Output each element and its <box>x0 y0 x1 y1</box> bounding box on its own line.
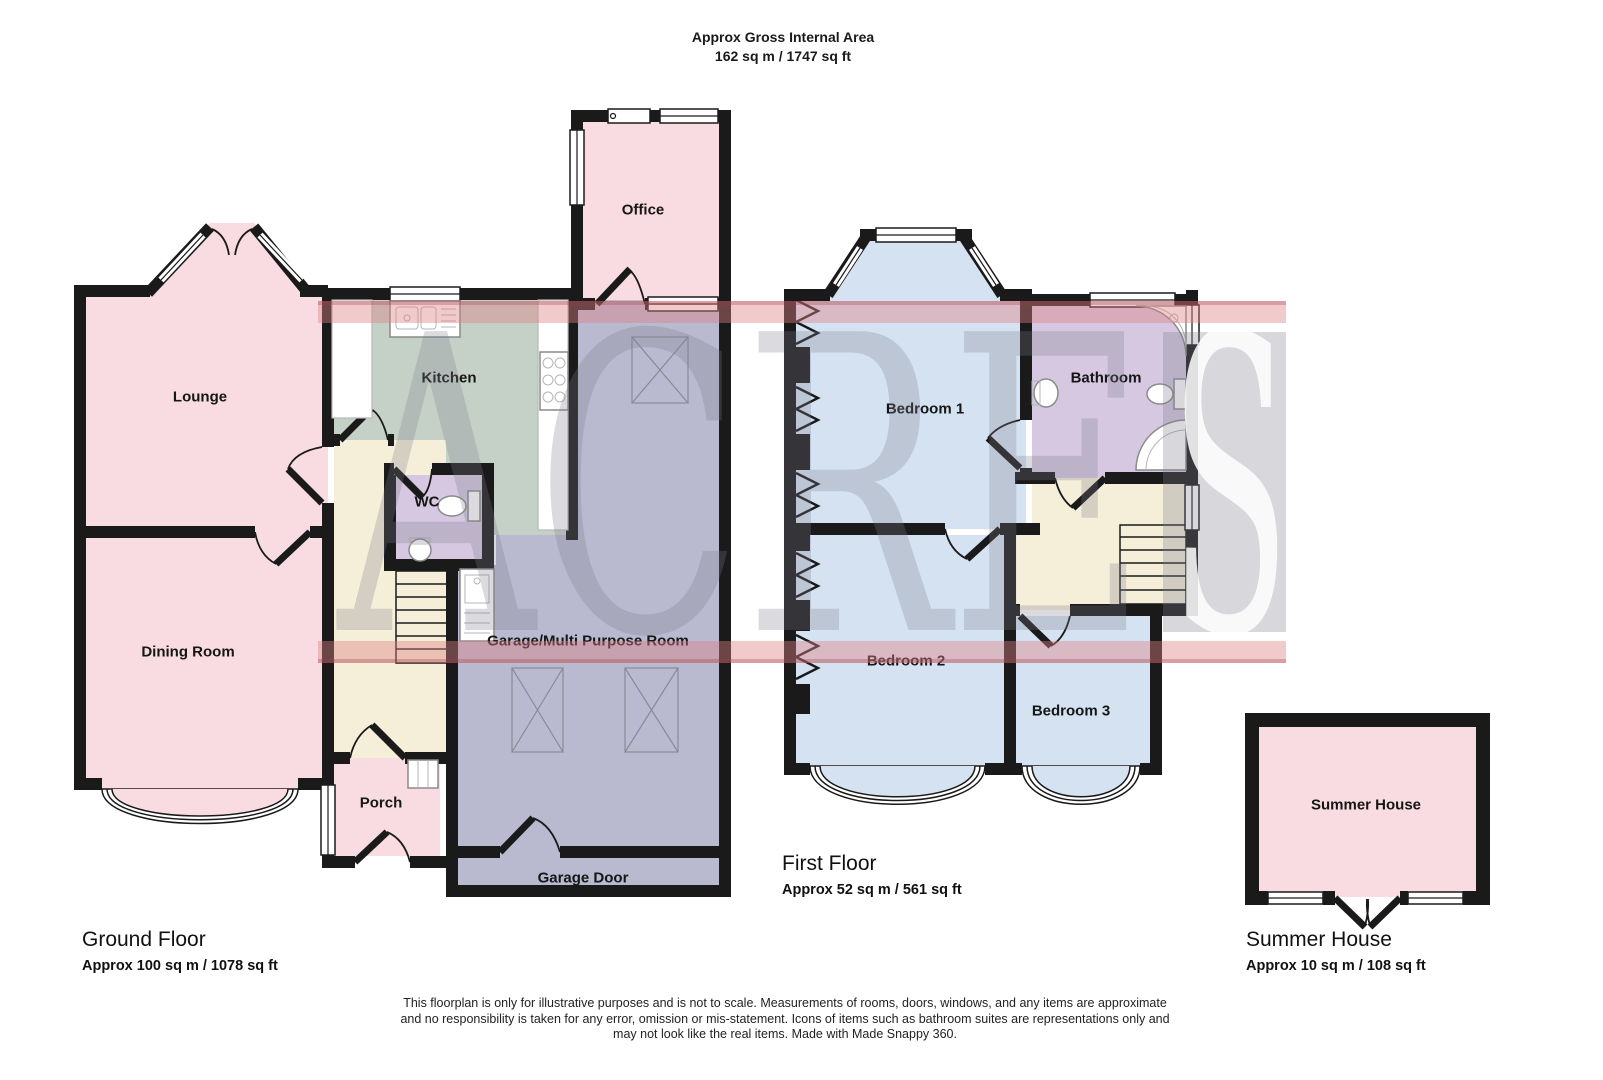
disclaimer-line2: and no responsibility is taken for any e… <box>305 1012 1265 1028</box>
ground-floor-area: Approx 100 sq m / 1078 sq ft <box>82 958 278 974</box>
kitchen-worktop-right <box>538 300 568 530</box>
wc-toilet <box>468 491 480 521</box>
room-label-dining: Dining Room <box>141 644 234 661</box>
summer-house-caption: Summer House Approx 10 sq m / 108 sq ft <box>1246 928 1426 974</box>
disclaimer-line3: may not look like the real items. Made w… <box>305 1027 1265 1043</box>
summer-house-plan <box>1235 695 1505 940</box>
first-floor-plan <box>770 215 1220 835</box>
bathroom-basin-icon <box>1034 379 1058 407</box>
room-label-kitchen: Kitchen <box>421 370 476 387</box>
wc-basin <box>409 539 431 561</box>
room-label-garage: Garage/Multi Purpose Room <box>487 633 689 650</box>
ground-floor-plan <box>60 95 760 925</box>
kitchen-hob <box>540 352 568 410</box>
garage-door-wall <box>446 885 731 897</box>
entrance-steps <box>408 760 438 788</box>
disclaimer-line1: This floorplan is only for illustrative … <box>305 996 1265 1012</box>
ground-floor-title: Ground Floor <box>82 928 278 952</box>
kitchen-worktop-left <box>332 300 372 418</box>
header-line1: Approx Gross Internal Area <box>692 28 874 47</box>
kitchen-sink <box>390 301 460 337</box>
disclaimer: This floorplan is only for illustrative … <box>305 996 1265 1043</box>
room-label-porch: Porch <box>360 795 403 812</box>
summer-house-area: Approx 10 sq m / 108 sq ft <box>1246 958 1426 974</box>
room-label-bathroom: Bathroom <box>1071 370 1142 387</box>
room-label-bedroom1: Bedroom 1 <box>886 401 964 418</box>
floorplan-page: Approx Gross Internal Area 162 sq m / 17… <box>0 0 1603 1080</box>
room-label-office: Office <box>622 202 665 219</box>
gross-internal-area-header: Approx Gross Internal Area 162 sq m / 17… <box>692 28 874 66</box>
room-label-bedroom3: Bedroom 3 <box>1032 703 1110 720</box>
bedroom3-room <box>1015 616 1156 769</box>
first-floor-area: Approx 52 sq m / 561 sq ft <box>782 882 962 898</box>
room-label-summer-house: Summer House <box>1311 797 1421 814</box>
header-line2: 162 sq m / 1747 sq ft <box>692 47 874 66</box>
summer-house-title: Summer House <box>1246 928 1426 952</box>
room-label-bedroom2: Bedroom 2 <box>867 653 945 670</box>
first-floor-title: First Floor <box>782 852 962 876</box>
room-label-lounge: Lounge <box>173 389 227 406</box>
ground-floor-caption: Ground Floor Approx 100 sq m / 1078 sq f… <box>82 928 278 974</box>
room-label-wc: WC <box>415 494 440 511</box>
room-label-garage-door: Garage Door <box>538 870 629 887</box>
first-floor-caption: First Floor Approx 52 sq m / 561 sq ft <box>782 852 962 898</box>
bathroom-toilet-icon <box>1174 379 1186 409</box>
office-top-window-small <box>608 109 650 123</box>
